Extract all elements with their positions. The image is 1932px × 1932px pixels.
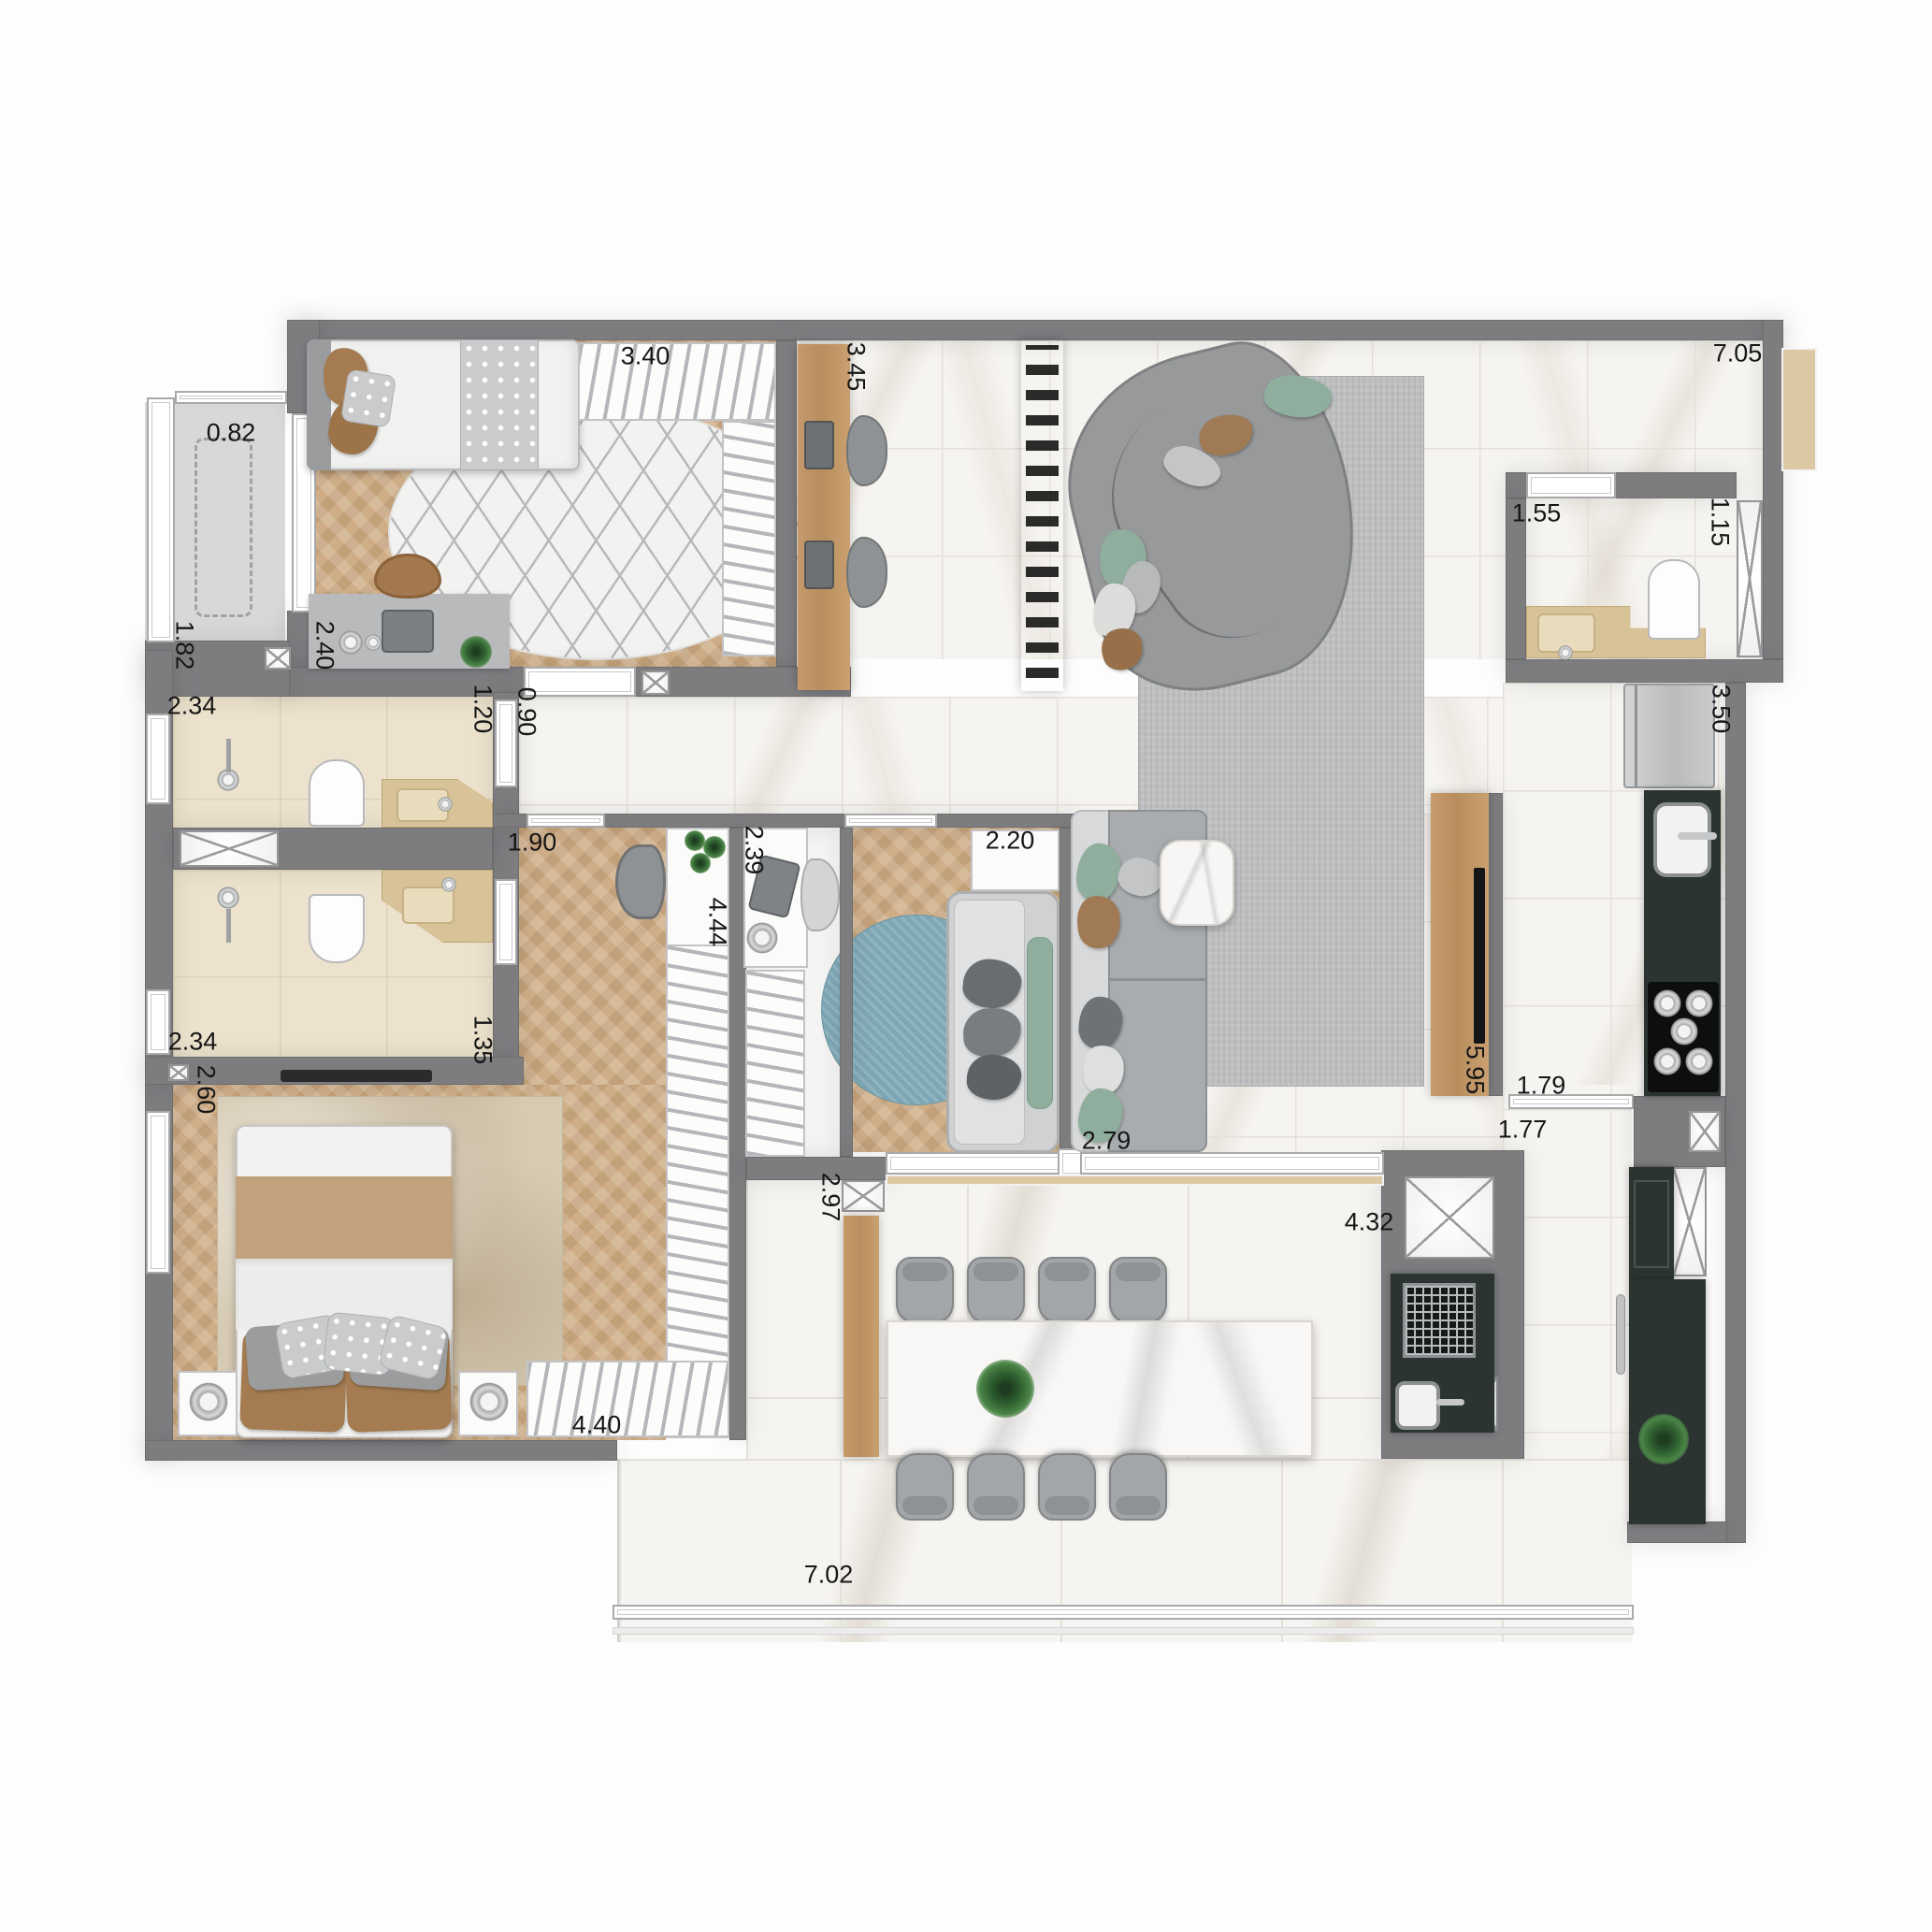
fridge-door-line: [1635, 685, 1637, 786]
dimension-label: 2.34: [167, 694, 217, 719]
dimension-label: 4.32: [1345, 1210, 1394, 1235]
bedroom1-closet-side: [722, 421, 776, 656]
door-tv-room: [844, 814, 937, 828]
door-dressing: [526, 814, 605, 828]
wall-nook-east: [840, 828, 853, 1157]
dimension-label: 0.90: [514, 687, 540, 737]
burner-2: [1685, 989, 1713, 1017]
dressing-plant-3: [690, 853, 711, 873]
dressing-armchair: [615, 844, 666, 919]
wall-right-lower: [1725, 683, 1746, 1543]
lavabo-toilet: [1648, 559, 1700, 640]
dining-table: [887, 1320, 1313, 1457]
shaft-bedroom1-corner: [642, 670, 670, 695]
bathroom1-toilet: [309, 759, 365, 827]
dimension-label: 3.45: [843, 342, 869, 392]
service-faucet: [1436, 1399, 1464, 1406]
nook-closet-rails: [745, 970, 805, 1157]
grill-oven-inset: [1634, 1180, 1669, 1268]
terrace-sill: [886, 1175, 1384, 1186]
burner-3: [1670, 1017, 1698, 1045]
burner-1: [1653, 989, 1681, 1017]
bathroom2-window: [146, 989, 170, 1055]
bathroom1-faucet: [438, 797, 453, 812]
balcony-west-window: [147, 397, 175, 642]
shaft-kitchen-door: [1689, 1111, 1721, 1152]
dimension-label: 3.40: [621, 344, 670, 369]
dimension-label: 2.79: [1082, 1129, 1132, 1154]
service-drying-grid: [1403, 1283, 1476, 1358]
shaft-master-corner: [168, 1064, 189, 1081]
dimension-label: 2.40: [312, 621, 338, 670]
shaft-balcony-corner: [265, 647, 291, 670]
dimension-label: 3.50: [1709, 685, 1734, 734]
kitchen-sink: [1653, 802, 1711, 877]
dimension-label: 5.95: [1463, 1045, 1488, 1095]
dimension-label: 1.77: [1498, 1117, 1548, 1143]
wall-kitchen-bottom: [1627, 1521, 1727, 1543]
office-monitor-1: [804, 421, 834, 469]
wall-master-bottom: [145, 1440, 617, 1461]
l-sofa-divider: [1110, 978, 1205, 981]
dimension-label: 1.55: [1512, 501, 1562, 526]
nightstand-lamp-left: [189, 1382, 228, 1421]
bathroom2-faucet: [441, 877, 456, 892]
bathroom1-window: [146, 714, 170, 804]
kitchen-faucet: [1678, 832, 1717, 840]
dimension-label: 1.82: [172, 621, 197, 670]
dimension-label: 2.97: [818, 1173, 843, 1222]
bathroom2-toilet: [309, 894, 365, 963]
dimension-label: 2.34: [168, 1030, 218, 1055]
grill-plant: [1638, 1414, 1689, 1464]
bedroom1-stool: [374, 554, 441, 598]
office-monitor-2: [804, 541, 834, 589]
dining-chair-7: [1038, 1453, 1096, 1521]
double-bed-blanket: [236, 1176, 453, 1259]
dining-chair-1: [896, 1257, 954, 1324]
grill-counter-main: [1629, 1279, 1706, 1524]
master-window: [146, 1111, 170, 1274]
dining-chair-5: [896, 1453, 954, 1521]
terrace-bottom-sill-2: [613, 1627, 1634, 1635]
bedroom1-desk-lamp: [339, 630, 363, 655]
dimension-label: 2.39: [742, 826, 767, 875]
burner-5: [1685, 1047, 1713, 1075]
dining-chair-4: [1109, 1257, 1167, 1324]
bedroom1-closet-top: [578, 342, 776, 421]
shaft-service-big: [1405, 1176, 1494, 1259]
dining-chair-8: [1109, 1453, 1167, 1521]
dimension-label: 7.05: [1713, 341, 1763, 367]
bathroom1-shower-arm: [226, 739, 231, 772]
door-bathroom2: [495, 879, 517, 965]
dimension-label: 4.40: [572, 1413, 622, 1438]
bathroom2-shower-arm: [226, 909, 231, 943]
wine-rack: [1021, 339, 1063, 691]
service-sink: [1395, 1381, 1440, 1430]
bedroom1-plant: [460, 636, 492, 668]
wall-right-upper: [1763, 320, 1783, 659]
shaft-kitchen-right: [1672, 1167, 1707, 1276]
shaft-terrace-corner: [842, 1180, 885, 1212]
dimension-label: 0.82: [207, 421, 256, 446]
terrace-track-west: [886, 1152, 1082, 1175]
daybed-green-bolster: [1027, 937, 1053, 1109]
burner-4: [1653, 1047, 1681, 1075]
dining-centerpiece-plant: [976, 1360, 1034, 1418]
master-closet-bottom: [526, 1361, 729, 1437]
dimension-label: 1.35: [470, 1016, 496, 1065]
bedroom1-laptop: [382, 610, 434, 653]
terrace-track-east: [1080, 1152, 1384, 1175]
dining-chair-2: [967, 1257, 1025, 1324]
dining-chair-3: [1038, 1257, 1096, 1324]
balcony-top-sill: [175, 391, 287, 404]
dimension-label: 1.79: [1517, 1074, 1566, 1099]
dimension-label: 1.20: [470, 685, 496, 734]
balcony-ac-unit: [195, 438, 252, 617]
dressing-plant-1: [685, 830, 705, 851]
dimension-label: 1.90: [508, 830, 557, 856]
lavabo-faucet: [1558, 645, 1573, 660]
dimension-label: 4.44: [705, 898, 730, 947]
dimension-label: 1.15: [1708, 497, 1733, 547]
door-lavabo: [1526, 472, 1616, 498]
wall-top: [290, 320, 1783, 340]
terrace-bottom-sill-1: [613, 1605, 1634, 1620]
nightstand-lamp-right: [469, 1382, 509, 1421]
bed1-duvet: [460, 339, 539, 470]
wall-bed1-right: [776, 340, 797, 667]
office-desk: [798, 344, 850, 690]
marble-coffee-table: [1160, 840, 1234, 926]
floor-plan: 3.400.821.822.402.341.200.903.457.051.55…: [0, 0, 1932, 1932]
shaft-lavabo: [1737, 500, 1763, 657]
dimension-label: 2.20: [986, 829, 1035, 854]
grill-door-handle: [1616, 1294, 1625, 1375]
shaft-bathrooms: [180, 830, 279, 867]
wall-step-right: [1506, 659, 1783, 683]
dimension-label: 7.02: [804, 1563, 854, 1588]
bedroom1-desk-knob: [365, 634, 382, 651]
wall-tvpanel: [1487, 793, 1503, 1096]
window-bay-top-right: [1781, 348, 1817, 471]
bed1-pillow-checker: [340, 368, 396, 427]
dimension-label: 2.60: [194, 1065, 219, 1115]
kitchen-tv: [1474, 868, 1485, 1044]
dining-chair-6: [967, 1453, 1025, 1521]
master-tv: [281, 1070, 432, 1082]
bathroom2-shower-head: [217, 887, 239, 909]
nook-lamp: [746, 922, 778, 954]
dining-sideboard: [843, 1216, 879, 1457]
bathroom2-sink: [402, 887, 454, 924]
